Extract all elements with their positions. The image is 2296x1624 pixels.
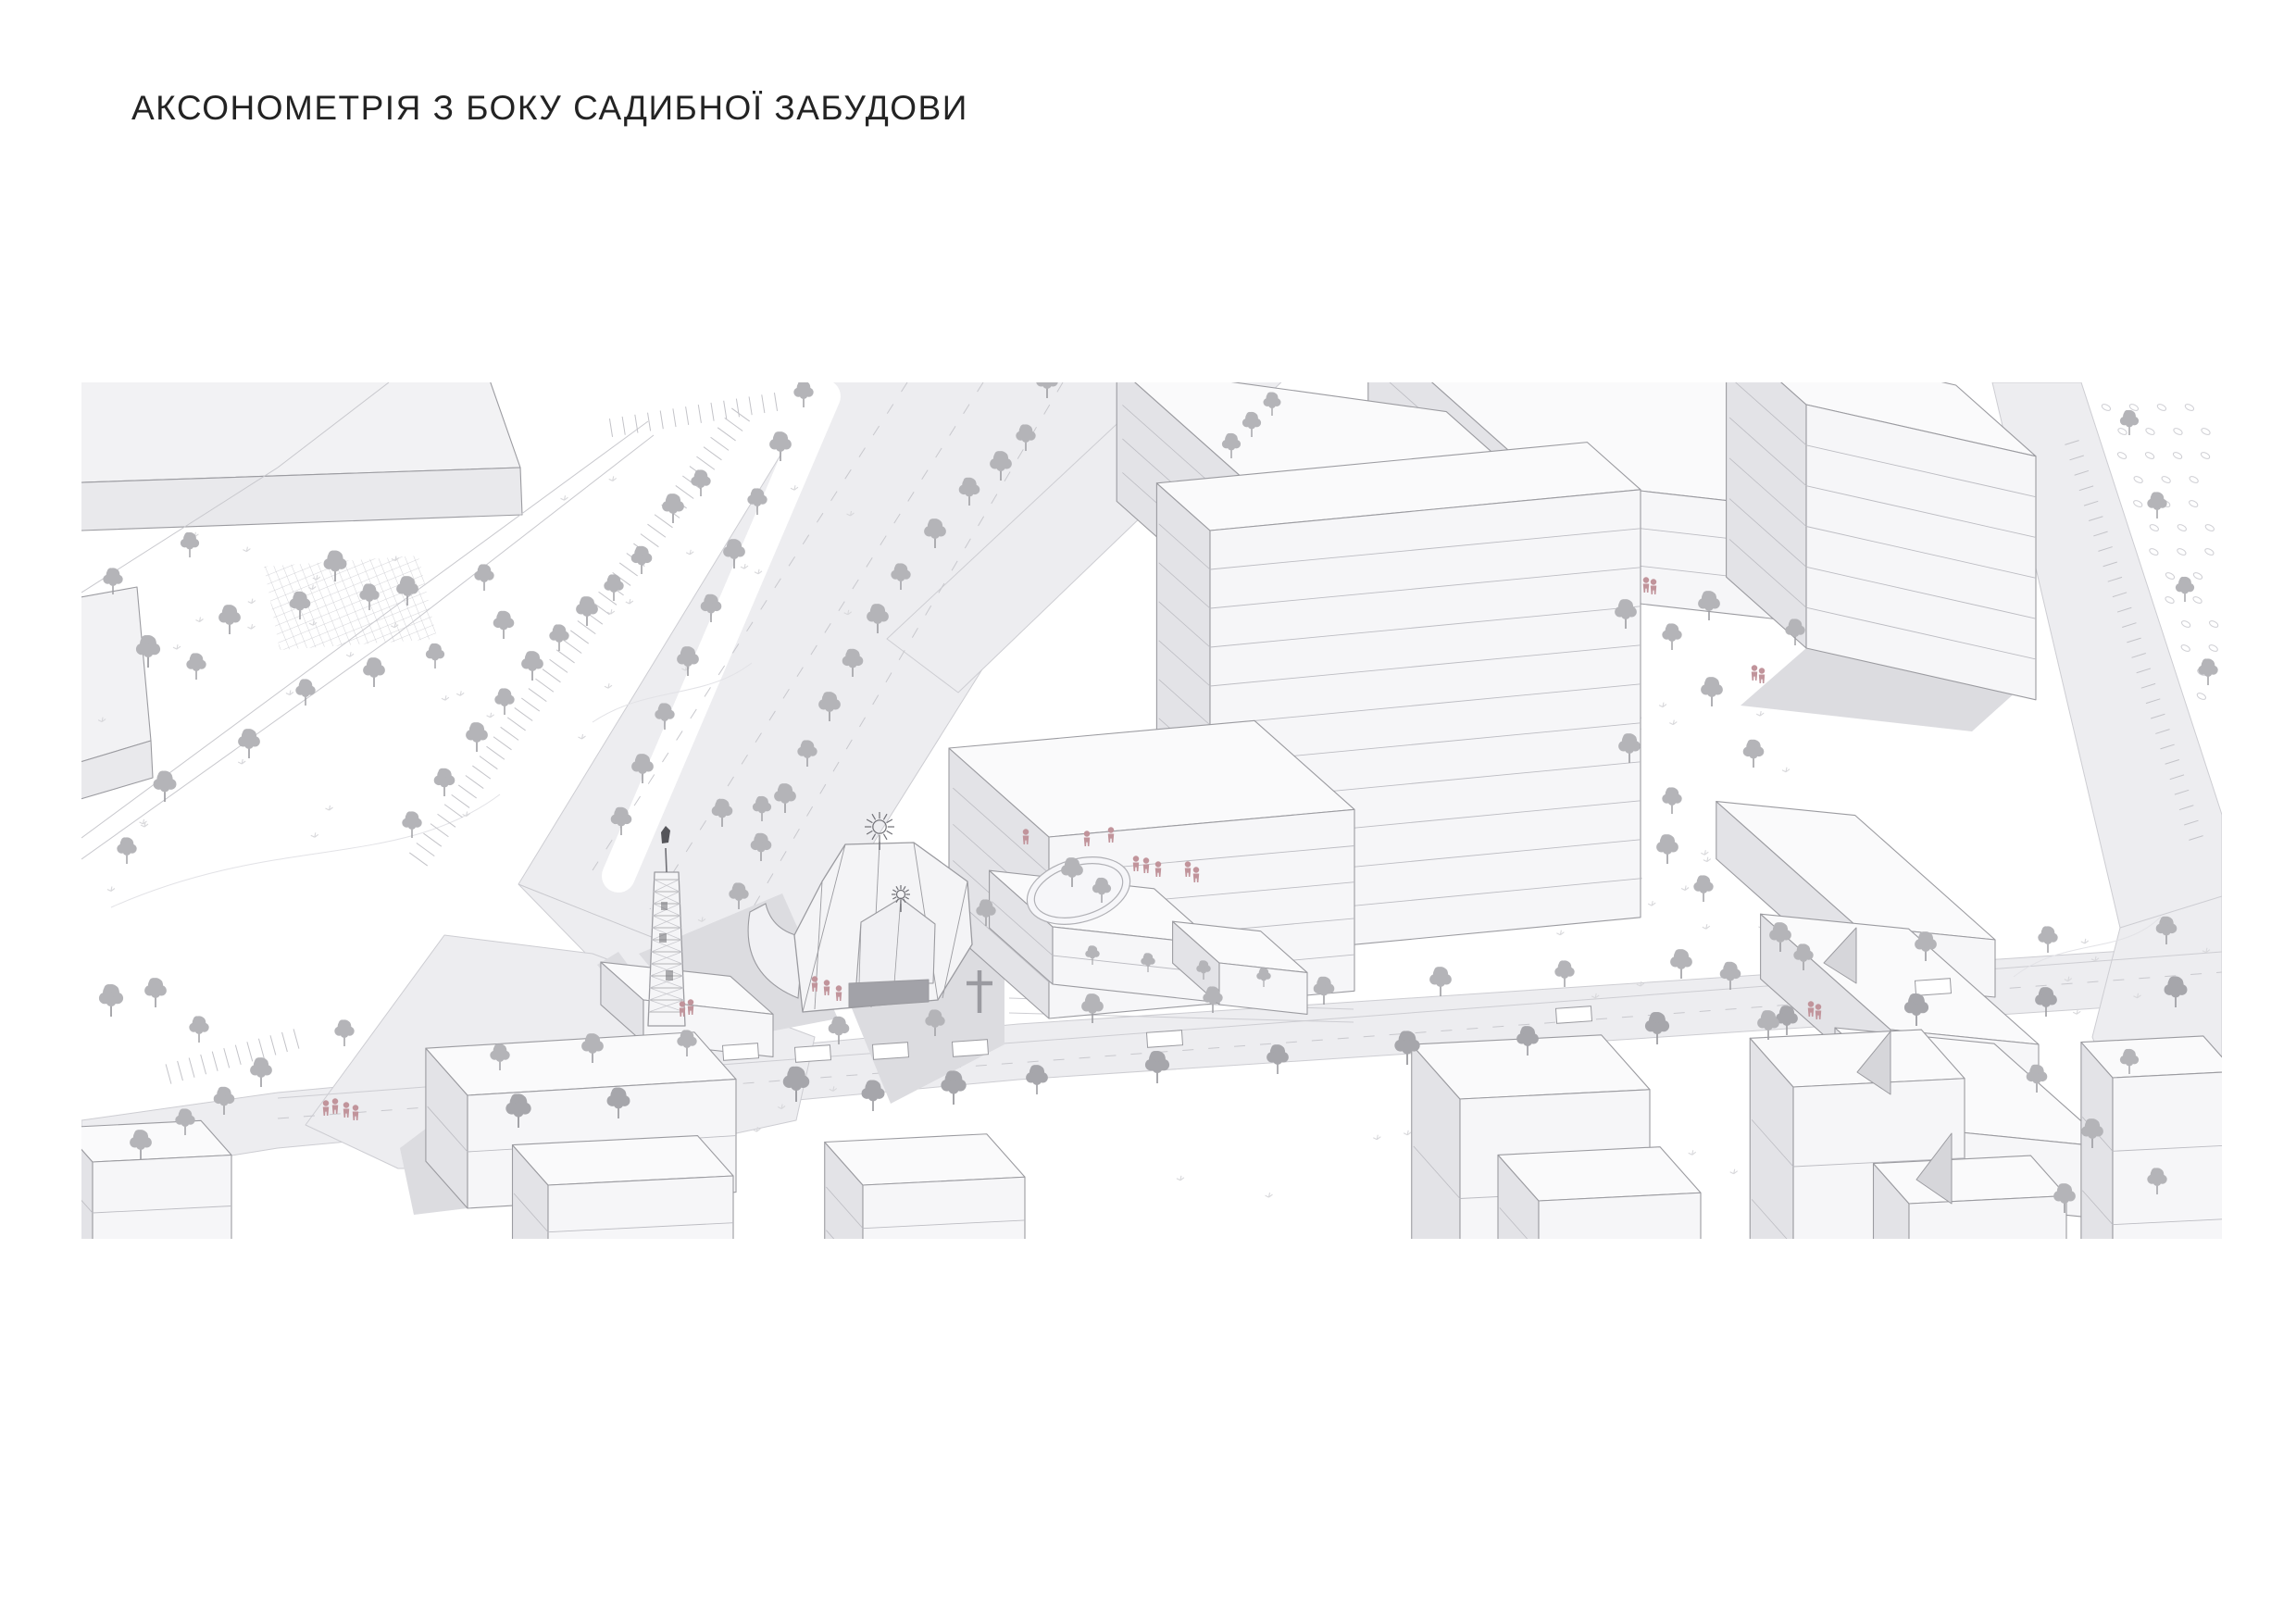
tree-icon xyxy=(1670,949,1692,979)
line xyxy=(417,843,434,856)
building-side-face xyxy=(1874,1164,1910,1409)
tower-frame xyxy=(648,872,685,1026)
line xyxy=(258,1039,264,1058)
grass-mark-icon xyxy=(173,644,181,649)
grass-mark-icon xyxy=(442,695,449,700)
line xyxy=(673,408,676,427)
line xyxy=(619,563,637,576)
grass-mark-icon xyxy=(238,759,245,764)
grass-mark-icon xyxy=(107,887,115,892)
grass-mark-icon xyxy=(1404,1131,1411,1135)
tree-icon xyxy=(295,679,315,706)
line xyxy=(1793,1238,1965,1246)
grass-mark-icon xyxy=(1782,768,1790,772)
grass-mark-icon xyxy=(1730,1169,1738,1174)
grass-mark-icon xyxy=(326,806,333,810)
street-pavilion xyxy=(872,1043,908,1060)
tree-icon xyxy=(334,1019,354,1046)
line xyxy=(666,848,667,872)
line xyxy=(293,1029,299,1048)
parking-dot xyxy=(2189,475,2199,484)
tree-icon xyxy=(493,611,515,639)
grass-mark-icon xyxy=(1681,886,1689,891)
building-side-face xyxy=(1750,1038,1793,1326)
parking-dot xyxy=(2184,403,2194,412)
tree-icon xyxy=(189,1016,208,1043)
grass-mark-icon xyxy=(1648,901,1655,906)
parking-dot xyxy=(2180,619,2190,629)
line xyxy=(282,1032,288,1052)
grass-mark-icon xyxy=(579,734,586,739)
tree-icon xyxy=(2198,658,2217,685)
grass-mark-icon xyxy=(626,599,633,604)
line xyxy=(570,631,588,643)
tree-icon xyxy=(238,729,260,758)
building-front-face xyxy=(1909,1196,2066,1410)
building-front-face xyxy=(548,1176,733,1326)
tree-icon xyxy=(434,768,455,796)
line xyxy=(423,833,441,846)
line xyxy=(648,524,666,537)
line xyxy=(93,1257,231,1265)
parking-dot xyxy=(2172,451,2182,460)
line xyxy=(564,640,581,653)
line xyxy=(452,794,469,807)
grass-mark-icon xyxy=(248,624,256,629)
line xyxy=(556,650,574,663)
line xyxy=(1909,1299,2066,1307)
tree-icon xyxy=(1662,787,1681,814)
line xyxy=(550,659,568,672)
grass-mark-icon xyxy=(1703,924,1710,929)
grass-mark-icon xyxy=(487,713,494,718)
tree-icon xyxy=(117,837,136,864)
grass-mark-icon xyxy=(286,691,293,695)
drawing-content xyxy=(56,326,2235,1409)
tree-icon xyxy=(2120,410,2139,435)
building-block xyxy=(1498,1147,1701,1354)
parking-dot xyxy=(2208,643,2218,653)
line xyxy=(514,1241,548,1280)
parking-dot xyxy=(2189,499,2199,508)
tree-icon xyxy=(186,653,206,680)
line xyxy=(686,406,689,425)
street-pavilion xyxy=(722,1043,758,1061)
tree-icon xyxy=(2038,926,2057,953)
parking-dot xyxy=(2165,595,2175,605)
parking-dot xyxy=(2116,451,2127,460)
tree-icon xyxy=(1662,623,1681,650)
line xyxy=(466,775,483,788)
line xyxy=(724,401,727,419)
grass-mark-icon xyxy=(243,547,250,552)
building-side-face xyxy=(2081,1043,2113,1298)
street-pavilion xyxy=(1915,979,1951,996)
line xyxy=(711,437,729,450)
parking-dot xyxy=(2156,403,2166,412)
parking-dot xyxy=(2204,523,2215,532)
site-axonometric-drawing xyxy=(0,0,2296,1624)
parking-dot xyxy=(2192,571,2202,581)
line xyxy=(480,756,497,769)
building-front-face xyxy=(2113,1071,2235,1298)
line xyxy=(515,707,532,720)
person-figure-icon xyxy=(1759,668,1765,683)
parking-dot xyxy=(2161,475,2171,484)
parking-dot xyxy=(2208,619,2218,629)
tree-icon xyxy=(494,688,514,715)
line xyxy=(1875,1268,1909,1306)
line xyxy=(774,393,777,411)
line xyxy=(863,1264,1025,1272)
building-block xyxy=(513,1136,734,1326)
parking-dot xyxy=(2200,451,2210,460)
street-pavilion xyxy=(794,1045,830,1063)
line xyxy=(189,1057,194,1077)
line xyxy=(501,727,518,740)
line xyxy=(717,428,735,441)
grass-mark-icon xyxy=(1701,850,1708,855)
building-roof xyxy=(1874,1156,2067,1204)
line xyxy=(235,1045,241,1065)
tower-accent xyxy=(666,970,673,981)
tree-icon xyxy=(2147,492,2166,518)
grass-mark-icon xyxy=(686,550,693,555)
context-slab-roof xyxy=(65,587,151,767)
grass-mark-icon xyxy=(346,652,354,656)
line xyxy=(270,1035,276,1055)
parking-dot xyxy=(2204,547,2215,556)
grass-mark-icon xyxy=(1373,1135,1380,1140)
tree-icon xyxy=(576,596,598,626)
building-block xyxy=(62,1120,231,1315)
line xyxy=(438,814,455,827)
tree-icon xyxy=(144,978,167,1007)
grass-mark-icon xyxy=(1177,1176,1184,1181)
parking-dot xyxy=(2201,427,2211,436)
line xyxy=(224,1048,230,1068)
line xyxy=(641,534,658,547)
grass-mark-icon xyxy=(311,832,318,837)
line xyxy=(1500,1258,1539,1303)
line xyxy=(487,746,505,759)
parking-dot xyxy=(2144,451,2154,460)
line xyxy=(212,1052,218,1071)
ground-contour xyxy=(111,794,500,907)
parking-dot xyxy=(2101,403,2111,412)
line xyxy=(201,1055,206,1074)
street-pavilion xyxy=(1146,1031,1182,1048)
grass-mark-icon xyxy=(1703,857,1711,862)
line xyxy=(521,698,539,711)
tree-icon xyxy=(154,771,177,802)
line xyxy=(655,515,672,528)
person-figure-icon xyxy=(1752,665,1757,681)
tree-icon xyxy=(691,469,710,496)
tree-icon xyxy=(549,624,568,651)
context-slab-roof xyxy=(56,369,520,483)
line xyxy=(731,408,749,421)
line xyxy=(444,805,462,818)
building-block xyxy=(1874,1156,2067,1409)
tree-icon xyxy=(2176,577,2194,602)
grass-mark-icon xyxy=(1669,720,1677,725)
parking-dot xyxy=(2149,523,2159,532)
line xyxy=(409,853,427,866)
line xyxy=(430,824,448,837)
grass-mark-icon xyxy=(1689,1150,1696,1155)
line xyxy=(711,403,714,421)
parking-dot xyxy=(2192,595,2202,605)
parking-dot xyxy=(2177,547,2187,556)
building-block xyxy=(1727,333,2036,700)
line xyxy=(543,669,560,682)
line xyxy=(507,718,525,731)
tree-icon xyxy=(1554,960,1574,987)
line xyxy=(883,834,887,840)
tree-icon xyxy=(1429,967,1452,996)
grass-mark-icon xyxy=(1266,1193,1273,1197)
tree-icon xyxy=(474,564,493,591)
parking-dot xyxy=(2145,427,2155,436)
line xyxy=(178,1061,183,1081)
tower-accent xyxy=(659,933,667,943)
street-pavilion xyxy=(1555,1006,1591,1024)
street-pavilion xyxy=(952,1040,988,1057)
parking-dot xyxy=(2117,427,2128,436)
line xyxy=(1539,1243,1701,1252)
building-block xyxy=(825,1134,1025,1315)
tree-icon xyxy=(466,722,488,752)
tree-icon xyxy=(363,657,385,687)
line xyxy=(704,447,721,460)
tree-icon xyxy=(521,651,543,681)
parking-dot xyxy=(2165,571,2175,581)
line xyxy=(622,417,625,435)
line xyxy=(762,394,765,413)
line xyxy=(749,396,752,415)
line xyxy=(247,1042,253,1061)
tree-icon xyxy=(218,605,241,634)
grass-mark-icon xyxy=(561,495,568,500)
tree-icon xyxy=(1701,677,1723,706)
grass-mark-icon xyxy=(1659,703,1666,707)
grass-mark-icon xyxy=(196,618,204,622)
tree-icon xyxy=(99,984,123,1017)
parking-dot xyxy=(2133,499,2143,508)
tree-icon xyxy=(1656,834,1678,864)
line xyxy=(458,785,476,798)
building-front-face xyxy=(1539,1193,1701,1354)
building-front-face xyxy=(863,1177,1025,1315)
grass-mark-icon xyxy=(1556,931,1564,935)
line xyxy=(725,418,742,431)
line xyxy=(529,689,546,702)
line xyxy=(166,1064,171,1083)
line xyxy=(887,831,892,834)
tree-icon xyxy=(1743,740,1765,768)
parking-dot xyxy=(2133,475,2143,484)
line xyxy=(548,1269,733,1279)
line xyxy=(472,766,490,779)
grass-mark-icon xyxy=(1756,711,1764,716)
line xyxy=(736,399,739,418)
parking-dot xyxy=(2177,523,2187,532)
line xyxy=(609,418,612,437)
building-block xyxy=(2081,1036,2235,1298)
tree-icon xyxy=(662,493,684,523)
building-front-face xyxy=(93,1156,231,1316)
tree-icon xyxy=(631,546,653,574)
line xyxy=(1539,1294,1701,1303)
grass-mark-icon xyxy=(605,683,612,688)
parking-dot xyxy=(2196,692,2206,701)
grass-mark-icon xyxy=(463,812,470,817)
grass-mark-icon xyxy=(456,691,464,695)
grass-mark-icon xyxy=(609,476,617,481)
parking-dot xyxy=(2180,643,2190,653)
tree-icon xyxy=(1693,875,1713,902)
parking-dot xyxy=(2149,547,2159,556)
line xyxy=(698,405,701,423)
line xyxy=(535,679,553,692)
line xyxy=(696,456,714,469)
tree-icon xyxy=(426,643,444,668)
grass-mark-icon xyxy=(248,599,256,604)
line xyxy=(660,411,663,430)
grass-mark-icon xyxy=(2081,939,2089,943)
tree-icon xyxy=(250,1057,272,1087)
line xyxy=(493,737,511,750)
tower-accent xyxy=(661,902,668,910)
parking-dot xyxy=(2173,427,2183,436)
